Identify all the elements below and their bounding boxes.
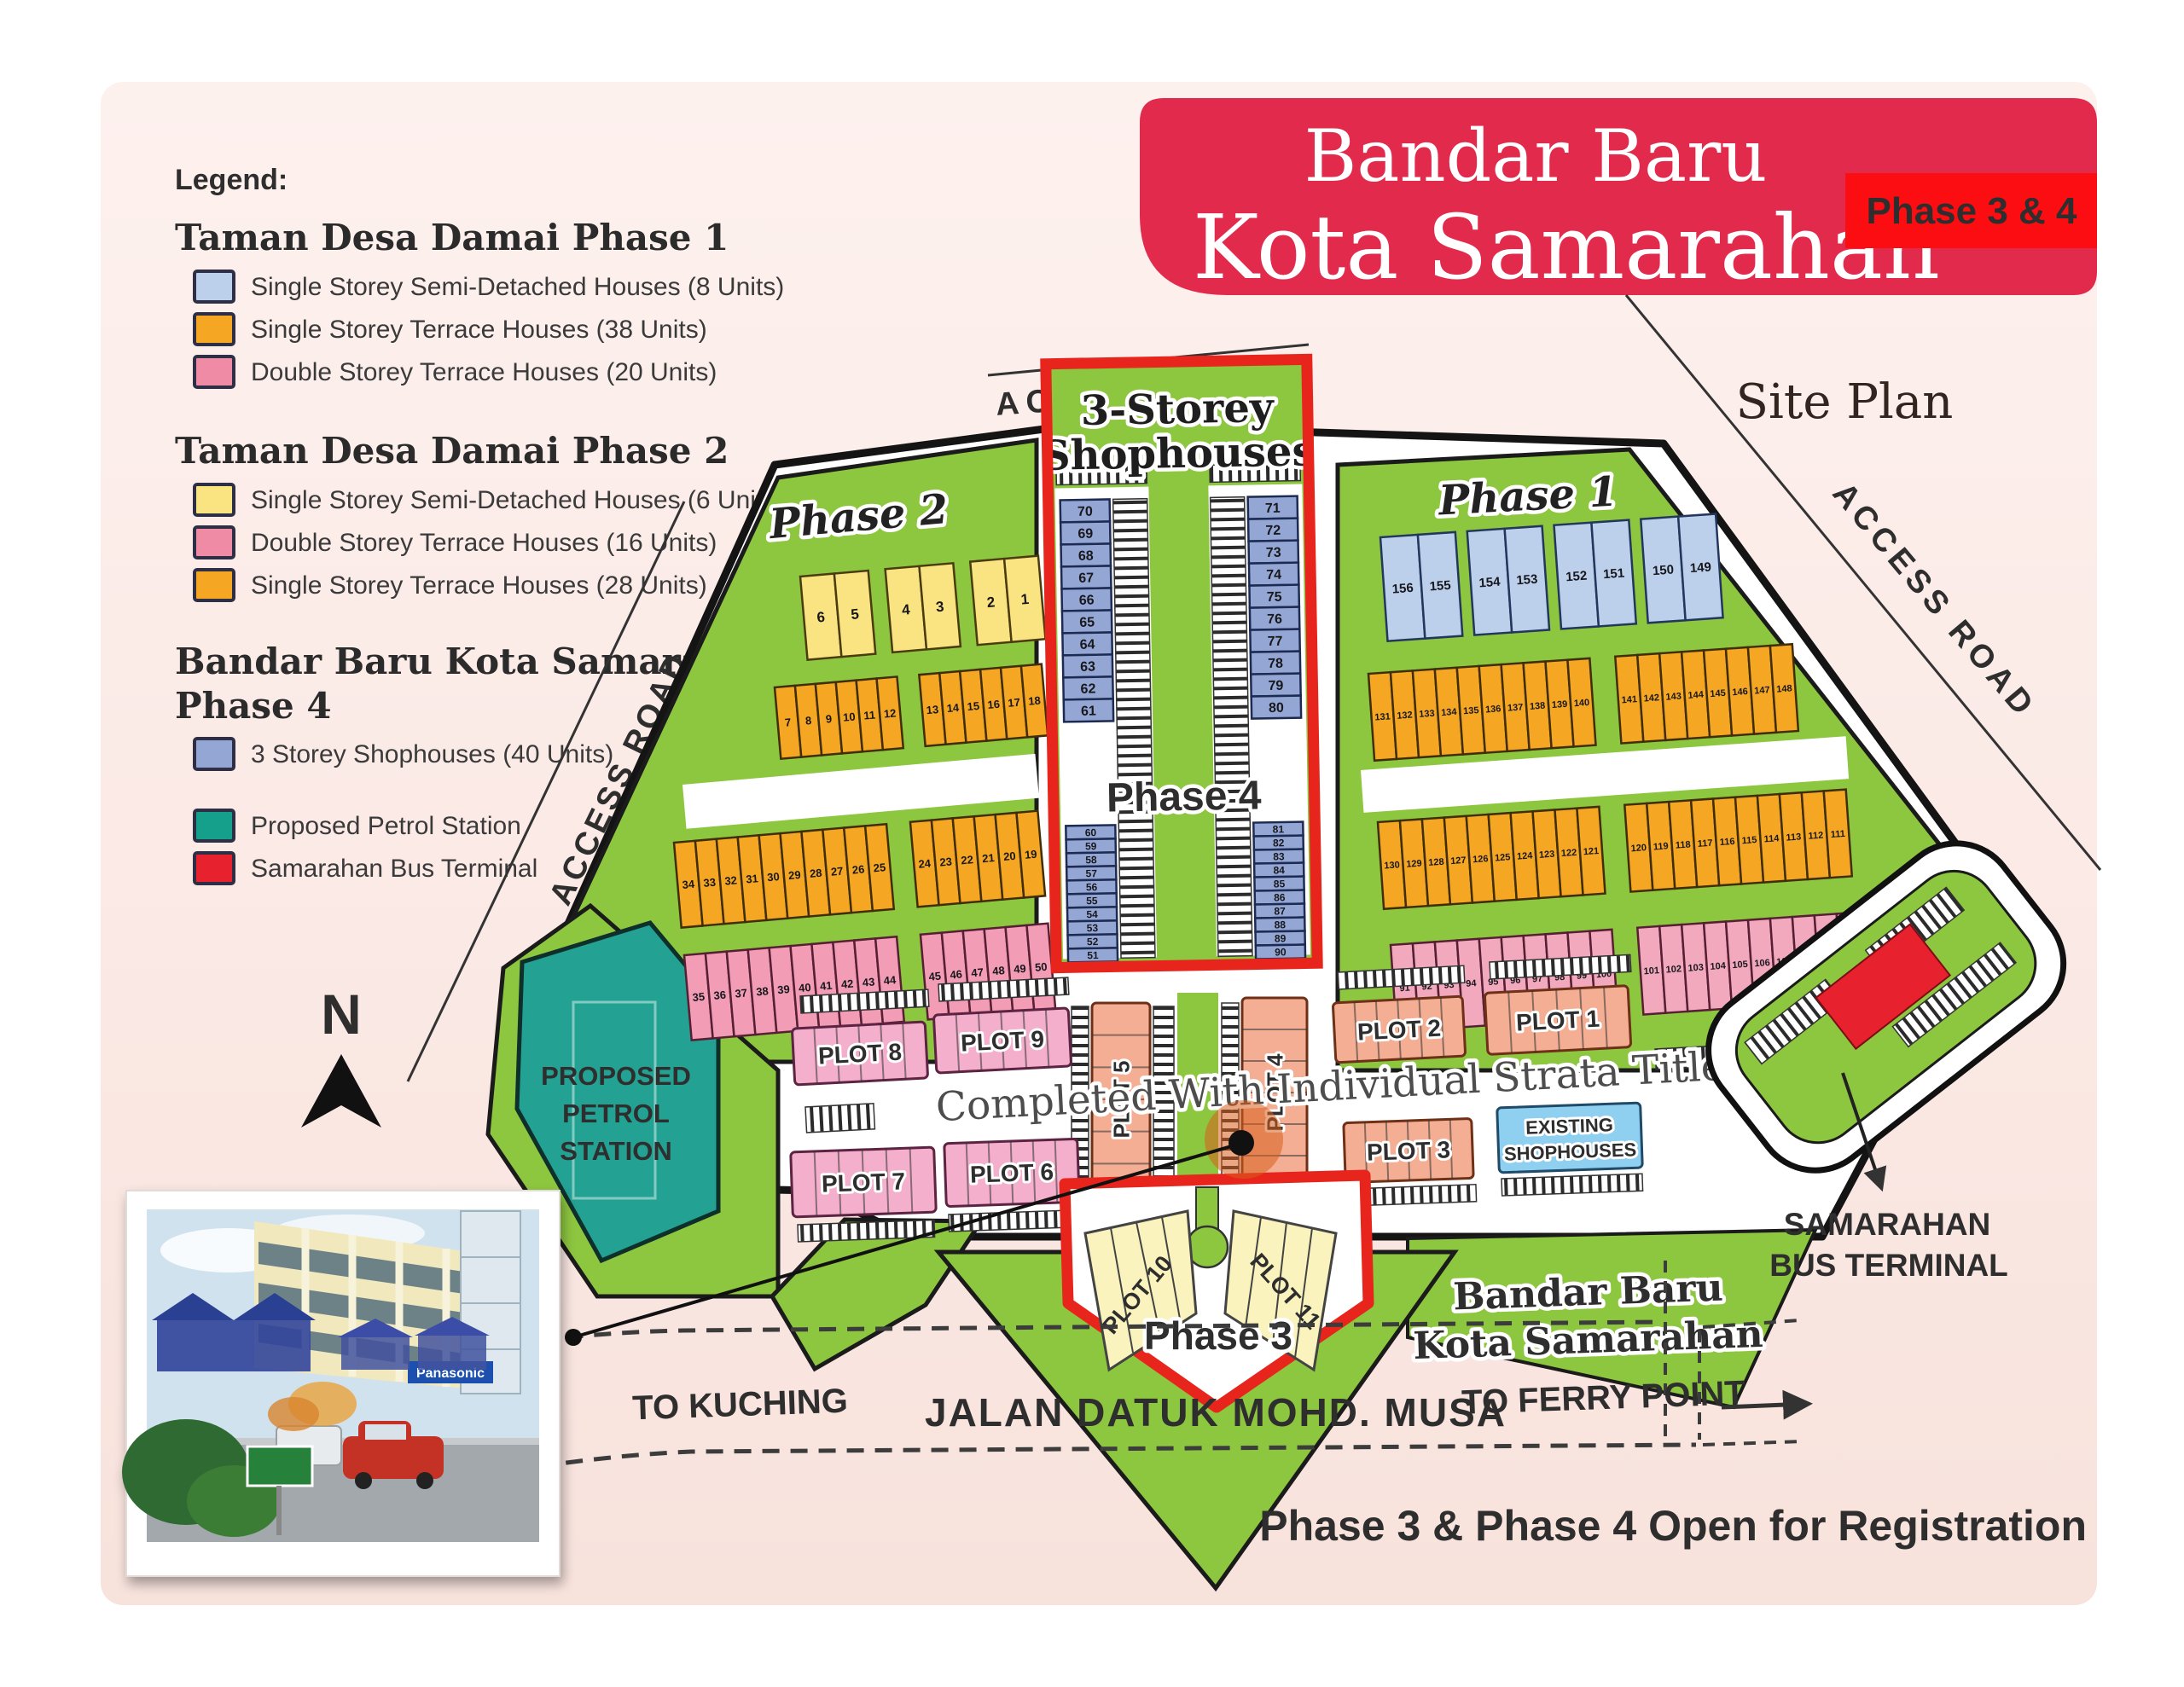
photo-scene: Panasonic [122,1209,539,1542]
lot-number: 128 [1428,857,1444,868]
plot-9: PLOT 9 [933,1008,1071,1073]
lot-number: 36 [713,988,727,1002]
lot-number: 146 [1732,687,1748,698]
lot-number: 12 [883,706,897,720]
lot-number: 102 [1665,964,1682,975]
lot-number: 3 [935,599,944,616]
lot-number: 115 [1741,835,1757,846]
lot-number: 29 [787,868,801,882]
petrol-label-3: STATION [560,1136,671,1166]
phase1-label: Phase 1 [1436,468,1618,525]
lot-number: 101 [1643,965,1659,977]
lot-number: 70 [1077,505,1093,519]
plot-7: PLOT 7 [791,1147,937,1217]
lot-number: 77 [1268,635,1283,649]
legend-swatch [195,484,234,515]
legend-section2-title: Taman Desa Damai Phase 2 [175,430,729,472]
lot-number: 154 [1478,575,1501,591]
lot-number: 28 [809,867,822,880]
lot-number: 68 [1078,549,1094,564]
lot-number: 9 [825,712,833,726]
lot-number: 151 [1603,566,1625,583]
lot-number: 111 [1830,829,1845,840]
phase4-block: 3-Storey Shophouses 70696867666564636261… [1039,359,1324,968]
lot-number: 19 [1024,848,1037,861]
plot-label: EXISTING [1525,1114,1613,1139]
lot-number: 34 [682,878,695,891]
lot-number: 8 [804,714,812,728]
lot-number: 105 [1732,959,1748,971]
lot-number: 148 [1776,683,1792,694]
lot-number: 64 [1080,638,1095,652]
lot-number: 17 [1008,696,1021,710]
lot-number: 142 [1643,693,1659,704]
lot-number: 74 [1266,568,1281,583]
lot-number: 41 [819,979,833,993]
phase4-col-60-51: 60595857565554535251 [1066,825,1118,962]
lot-number: 82 [1273,837,1285,849]
lot-number: 7 [784,716,792,729]
plot-1: PLOT 1 [1484,986,1631,1055]
photo-road-sign [247,1446,312,1486]
registration-banner: Phase 3 & Phase 4 Open for Registration [1259,1502,2087,1550]
lot-number: 61 [1081,704,1096,719]
legend-item-label: Samarahan Bus Terminal [251,855,537,883]
legend-item-label: Double Storey Terrace Houses (20 Units) [251,358,717,386]
lot-number: 103 [1687,962,1704,973]
lot-number: 42 [840,977,854,991]
legend-swatch [195,853,234,884]
lot-number: 123 [1539,849,1555,861]
lot-number: 83 [1273,850,1285,862]
site-plan-canvas: Bandar Baru Kota Samarahan Phase 3 & 4 S… [0,0,2184,1687]
lot-number: 149 [1689,559,1711,576]
lot-number: 49 [1014,962,1027,976]
lot-number: 22 [961,853,974,867]
lot-number: 136 [1485,704,1501,715]
lot-number: 33 [703,876,717,890]
lot-number: 48 [992,964,1006,977]
lot-number: 71 [1265,501,1281,516]
lot-number: 53 [1087,922,1099,934]
lot-number: 67 [1078,571,1094,586]
lot-number: 118 [1675,839,1691,850]
petrol-label-1: PROPOSED [541,1061,691,1091]
to-kuching-label: TO KUCHING [632,1383,849,1428]
lot-number: 106 [1754,958,1770,969]
lot-number: 65 [1079,616,1095,630]
lot-number: 134 [1441,707,1458,718]
plot-label: PLOT 8 [817,1039,903,1070]
legend-swatch [195,527,234,558]
lot-number: 55 [1086,895,1098,907]
lot-number: 59 [1085,840,1097,852]
lot-number: 32 [724,873,738,887]
lot-number: 156 [1391,581,1414,597]
lot-number: 85 [1274,878,1286,890]
lot-number: 131 [1374,711,1391,722]
title-line1: Bandar Baru [1304,114,1768,198]
lot-number: 58 [1085,854,1097,866]
terminal-label-1: SAMARAHAN [1784,1207,1991,1242]
lot-number: 124 [1517,850,1534,861]
lot-number: 47 [971,965,985,979]
legend-item-label: Single Storey Semi-Detached Houses (8 Un… [251,273,784,301]
lot-number: 88 [1275,919,1287,930]
lot-number: 40 [798,981,811,994]
phase4-col-70-61: 70696867666564636261 [1060,499,1114,722]
lot-number: 54 [1086,908,1098,920]
plot-label: PLOT 9 [960,1026,1045,1057]
lot-number: 122 [1561,848,1577,859]
legend-swatch [195,739,234,769]
lot-number: 35 [692,990,706,1004]
legend-swatch [195,810,234,841]
lot-number: 25 [873,861,886,874]
lot-number: 57 [1085,867,1097,879]
legend-heading: Legend: [175,164,288,196]
lot-number: 52 [1087,936,1099,948]
lot-number: 14 [946,701,960,715]
lot-number: 38 [756,984,770,998]
lot-number: 18 [1028,694,1042,708]
lot-number: 114 [1763,833,1780,844]
title-line2: Kota Samarahan [1193,195,1940,299]
lot-number: 94 [1466,978,1478,989]
parking-hatch [805,1104,874,1133]
terminal-label-2: BUS TERMINAL [1769,1248,2008,1283]
lot-number: 121 [1583,846,1599,857]
shophouses-label-1: 3-Storey [1080,384,1275,435]
legend-item-label: Single Storey Semi-Detached Houses (6 Un… [251,486,784,514]
lot-number: 81 [1273,823,1285,835]
lot-number: 60 [1085,826,1097,838]
legend-section3-title2: Phase 4 [175,685,332,727]
lot-number: 84 [1273,864,1285,876]
lot-number: 21 [982,851,996,865]
shophouses-label-2: Shophouses [1040,427,1315,480]
lot-number: 116 [1719,837,1735,848]
lot-number: 43 [862,975,875,988]
lot-number: 113 [1786,832,1802,843]
legend-item-label: Proposed Petrol Station [251,812,521,840]
phase-badge-label: Phase 3 & 4 [1866,190,2077,232]
parking-hatch [1113,499,1155,959]
parking-hatch [1211,497,1252,957]
lot-number: 10 [842,710,856,724]
plot-label: PLOT 7 [822,1168,906,1197]
site-photo: Panasonic [122,1191,560,1576]
lot-number: 139 [1552,699,1568,710]
lot-number: 15 [967,699,980,713]
lot-number: 127 [1450,855,1467,867]
jalan-label: JALAN DATUK MOHD. MUSA [925,1390,1507,1435]
lot-number: 20 [1003,849,1017,863]
plot-label: PLOT 2 [1356,1015,1442,1046]
lot-number: 150 [1652,563,1674,579]
lot-number: 45 [928,970,942,983]
lot-number: 152 [1565,569,1588,585]
lot-number: 153 [1516,572,1538,588]
lot-number: 26 [851,862,865,876]
lot-number: 78 [1268,657,1283,671]
lot-number: 66 [1079,594,1095,608]
lot-number: 144 [1687,690,1705,701]
callout-dot-map [1228,1130,1254,1156]
lot-number: 69 [1077,527,1093,542]
lot-number: 39 [777,983,791,996]
lot-number: 141 [1621,694,1637,705]
callout-dot-photo [565,1329,582,1346]
lot-number: 129 [1406,858,1422,869]
lot-number: 147 [1754,685,1770,696]
lot-number: 2 [986,594,996,611]
lot-number: 104 [1710,961,1727,972]
lot-number: 27 [830,865,844,878]
legend-swatch [195,314,234,345]
plot-label: PLOT 1 [1515,1006,1600,1036]
lot-number: 133 [1419,709,1435,720]
lot-number: 37 [735,986,748,1000]
plot-label: PLOT 3 [1367,1136,1451,1165]
phase3-label: Phase 3 [1144,1313,1292,1358]
plot-8: PLOT 8 [792,1022,927,1085]
lot-number: 145 [1710,688,1726,699]
lot-number: 1 [1020,591,1030,608]
lot-number: 50 [1034,960,1048,974]
lot-number: 46 [950,967,963,981]
lot-number: 89 [1275,932,1287,944]
lot-number: 24 [918,857,932,871]
existing-shophouses: EXISTINGSHOPHOUSES [1497,1103,1643,1173]
lot-number: 6 [816,609,826,626]
lot-number: 112 [1808,831,1824,842]
compass-n-label: N [321,983,362,1046]
lot-number: 79 [1268,679,1283,693]
lot-number: 16 [987,698,1001,711]
lot-number: 132 [1397,710,1413,721]
lot-number: 137 [1507,702,1524,713]
lot-number: 155 [1429,578,1451,594]
lot-number: 135 [1463,705,1479,716]
lot-number: 5 [851,606,860,623]
lot-number: 72 [1265,524,1281,538]
lot-number: 117 [1697,838,1713,849]
phase4-col-71-80: 71727374757677787980 [1248,496,1302,719]
title-banner: Bandar Baru Kota Samarahan Phase 3 & 4 [1140,98,2097,299]
legend-section1-title: Taman Desa Damai Phase 1 [175,217,729,258]
site-plan-label: Site Plan [1736,374,1954,430]
lot-number: 31 [746,872,759,885]
lot-number: 119 [1653,841,1670,852]
photo-red-car [343,1436,444,1479]
lot-number: 87 [1274,905,1286,917]
site-plan-flyer: Bandar Baru Kota Samarahan Phase 3 & 4 S… [0,0,2184,1687]
lot-number: 130 [1384,860,1400,871]
lot-number: 11 [863,709,876,722]
plot-label: PLOT 6 [970,1158,1054,1187]
legend-swatch [195,570,234,600]
lot-number: 90 [1275,946,1287,958]
lot-number: 73 [1266,546,1281,560]
lot-number: 76 [1267,612,1282,627]
lot-number: 126 [1472,854,1489,865]
petrol-label-2: PETROL [562,1099,670,1128]
lot-number: 51 [1087,949,1099,961]
lot-number: 44 [883,973,897,987]
lot-number: 75 [1267,590,1282,605]
lot-number: 125 [1495,852,1511,863]
lot-number: 62 [1080,682,1095,697]
lot-number: 143 [1665,691,1682,702]
phase4-label: Phase 4 [1107,773,1263,820]
phase4-col-81-90: 81828384858687888990 [1253,822,1305,959]
legend-item-label: Double Storey Terrace Houses (16 Units) [251,529,717,557]
lot-number: 56 [1086,881,1098,893]
lot-number: 13 [926,703,939,716]
legend-swatch [195,357,234,387]
lot-number: 138 [1530,701,1546,712]
lot-number: 63 [1080,660,1095,675]
legend-item-label: Single Storey Terrace Houses (38 Units) [251,316,707,344]
lot-number: 80 [1269,701,1284,716]
plot-2: PLOT 2 [1333,996,1465,1063]
legend-swatch [195,271,234,302]
lot-number: 86 [1274,891,1286,903]
lot-number: 120 [1630,843,1647,854]
lot-number: 140 [1573,698,1589,709]
lot-number: 23 [939,855,953,868]
lot-number: 30 [767,870,781,884]
